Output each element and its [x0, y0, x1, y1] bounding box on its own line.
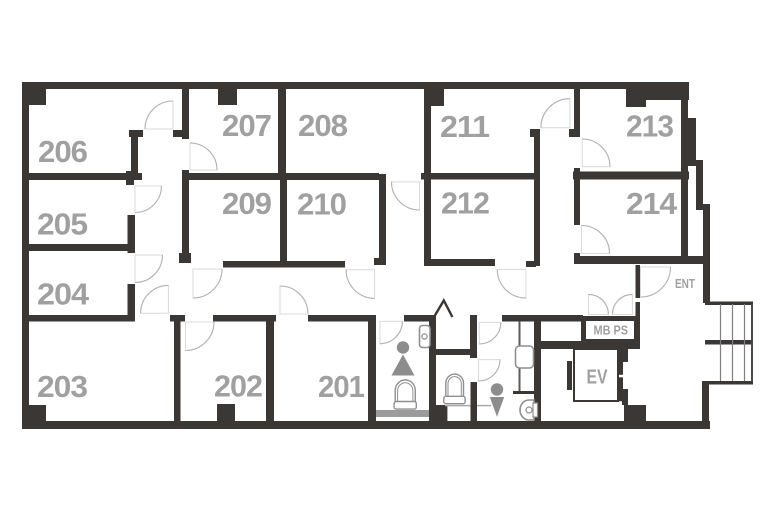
svg-text:201: 201 — [318, 369, 365, 404]
svg-text:213: 213 — [626, 109, 674, 144]
svg-text:MB PS: MB PS — [594, 323, 629, 338]
svg-text:212: 212 — [441, 186, 489, 221]
svg-text:207: 207 — [222, 108, 271, 143]
svg-text:204: 204 — [37, 276, 90, 311]
svg-text:206: 206 — [38, 134, 88, 169]
svg-text:211: 211 — [440, 109, 490, 144]
svg-text:EV: EV — [587, 367, 609, 389]
svg-text:205: 205 — [37, 206, 88, 241]
svg-text:214: 214 — [626, 186, 678, 221]
svg-text:209: 209 — [222, 186, 272, 221]
svg-text:202: 202 — [214, 369, 262, 404]
svg-text:210: 210 — [297, 187, 346, 222]
svg-text:ENT: ENT — [675, 276, 695, 291]
svg-text:203: 203 — [37, 369, 88, 404]
svg-text:208: 208 — [298, 108, 348, 143]
